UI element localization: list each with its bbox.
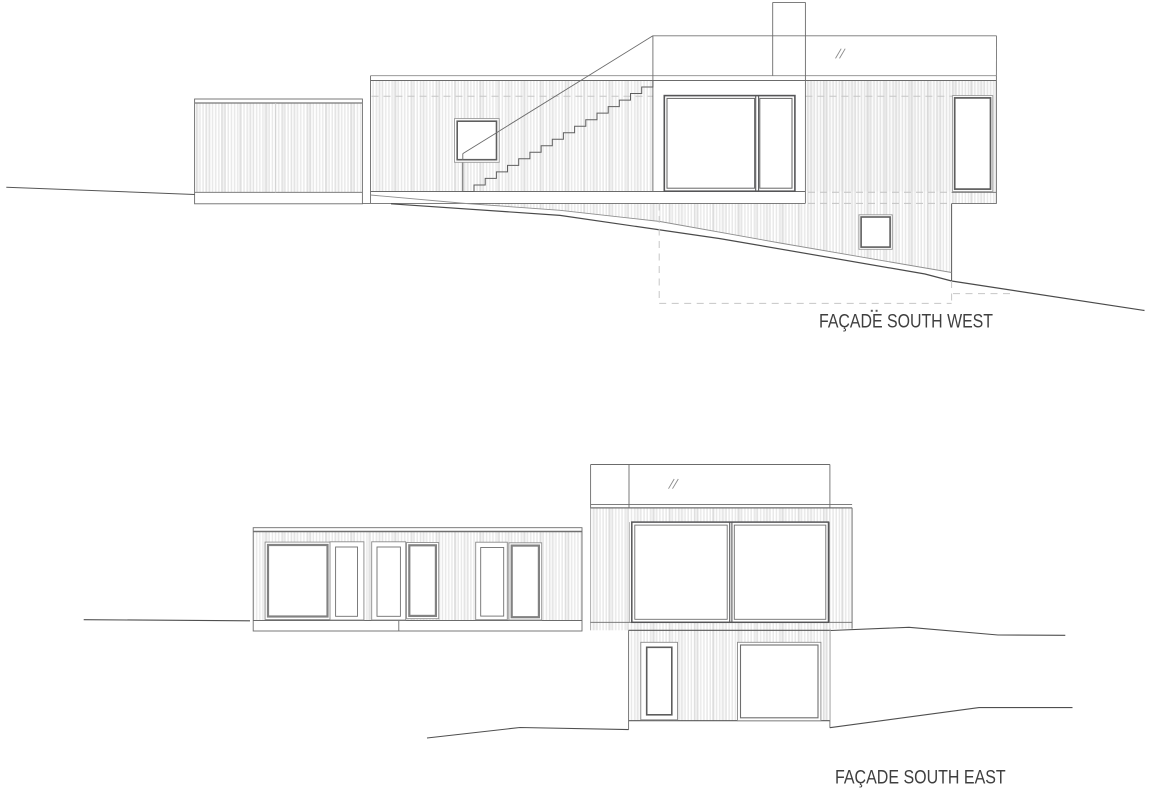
svg-text:FAÇADE SOUTH EAST: FAÇADE SOUTH EAST <box>835 767 1006 789</box>
svg-text:FAÇADE SOUTH WEST: FAÇADE SOUTH WEST <box>819 311 993 333</box>
